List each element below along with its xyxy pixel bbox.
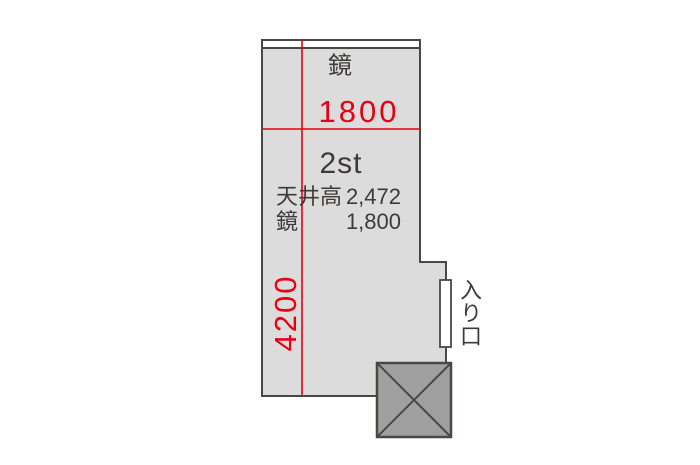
length-dimension-label: 4200 xyxy=(268,275,304,352)
mirror-size-label: 鏡 xyxy=(276,209,298,234)
room-spec-block: 天井高 2,472 鏡 1,800 xyxy=(276,184,401,234)
mirror-size-value: 1,800 xyxy=(346,209,401,234)
mirror-label: 鏡 xyxy=(328,46,352,81)
floor-plan-canvas: 鏡 1800 2st 天井高 2,472 鏡 1,800 4200 入り口 xyxy=(0,0,700,465)
entrance-door xyxy=(440,280,451,347)
mirror-size-row: 鏡 1,800 xyxy=(276,209,401,234)
entrance-label: 入り口 xyxy=(453,279,485,348)
width-dimension-label: 1800 xyxy=(319,94,400,130)
room-name-label: 2st xyxy=(319,147,362,181)
ceiling-height-value: 2,472 xyxy=(346,184,401,209)
ceiling-height-label: 天井高 xyxy=(276,184,342,209)
ceiling-height-row: 天井高 2,472 xyxy=(276,184,401,209)
